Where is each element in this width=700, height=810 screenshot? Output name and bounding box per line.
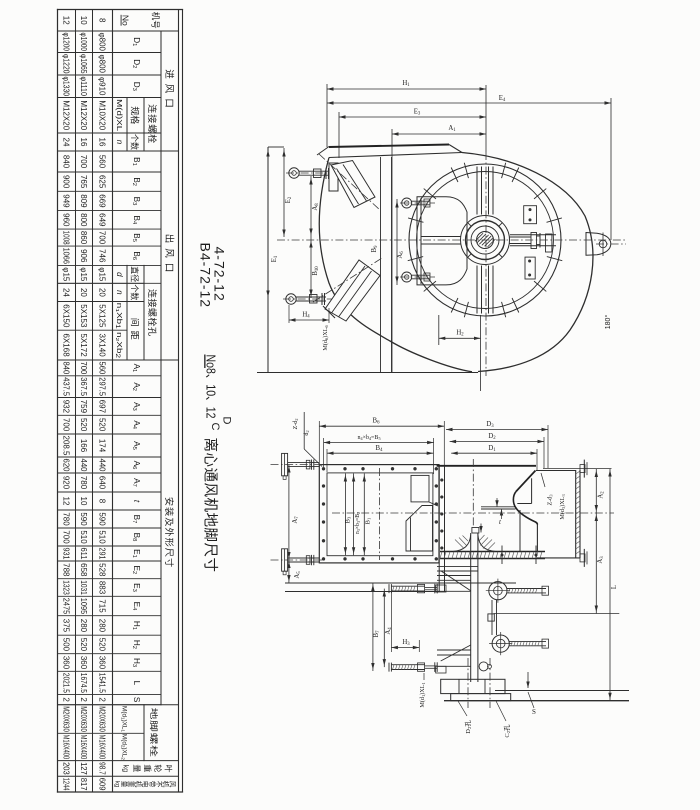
svg-text:611: 611	[79, 548, 88, 561]
svg-text:D2: D2	[488, 433, 496, 441]
svg-text:H3: H3	[131, 658, 141, 667]
svg-text:B6: B6	[373, 418, 381, 426]
svg-text:A7: A7	[292, 516, 300, 524]
svg-text:920: 920	[62, 476, 71, 490]
svg-text:S: S	[532, 708, 536, 716]
svg-text:M(d1)XL1: M(d1)XL1	[419, 682, 426, 707]
svg-text:φ800: φ800	[98, 54, 107, 73]
svg-text:C2孔: C2孔	[503, 724, 511, 738]
svg-text:16: 16	[98, 138, 107, 147]
svg-text:D: D	[221, 417, 233, 425]
svg-text:817: 817	[79, 778, 88, 791]
svg-text:φ15: φ15	[79, 267, 88, 282]
svg-text:649: 649	[98, 213, 107, 227]
svg-text:658: 658	[79, 563, 88, 577]
svg-text:M10X20: M10X20	[98, 100, 107, 130]
svg-text:367.5: 367.5	[79, 377, 88, 396]
svg-text:932: 932	[62, 400, 71, 414]
svg-text:759: 759	[79, 400, 88, 414]
svg-text:B5: B5	[131, 233, 141, 242]
svg-text:D2孔: D2孔	[464, 720, 472, 734]
svg-text:A1: A1	[448, 125, 456, 133]
svg-text:M(d1)XL1: M(d1)XL1	[119, 706, 127, 732]
svg-text:883: 883	[98, 581, 107, 595]
svg-text:5X125: 5X125	[98, 304, 107, 328]
svg-text:B6: B6	[131, 251, 141, 260]
svg-text:D2: D2	[131, 59, 141, 68]
svg-text:280: 280	[79, 619, 88, 633]
svg-text:φ1200: φ1200	[62, 33, 71, 52]
svg-text:H2: H2	[456, 330, 464, 338]
svg-text:D3: D3	[486, 421, 494, 429]
svg-text:780: 780	[62, 512, 71, 526]
svg-text:520: 520	[79, 418, 88, 432]
svg-text:φ1110: φ1110	[79, 77, 88, 97]
svg-text:D1: D1	[131, 37, 141, 46]
svg-text:连接螺栓孔: 连接螺栓孔	[147, 289, 158, 337]
svg-text:机号: 机号	[151, 12, 161, 29]
svg-text:B7: B7	[131, 515, 141, 524]
svg-text:D1: D1	[488, 445, 496, 453]
svg-text:669: 669	[98, 194, 107, 208]
svg-text:Z-d2: Z-d2	[292, 418, 299, 429]
svg-text:B2: B2	[131, 177, 141, 186]
svg-text:No8、10、12: No8、10、12	[204, 355, 219, 419]
svg-text:166: 166	[79, 439, 88, 453]
svg-text:127: 127	[79, 762, 88, 775]
svg-text:A1: A1	[131, 364, 141, 373]
svg-text:A4: A4	[385, 627, 393, 635]
svg-text:510: 510	[98, 530, 107, 544]
svg-text:n3×b3=B2: n3×b3=B2	[355, 512, 361, 534]
svg-text:E4: E4	[131, 602, 141, 611]
svg-text:375: 375	[62, 619, 71, 633]
svg-text:规格: 规格	[130, 106, 141, 124]
svg-text:n: n	[115, 290, 124, 295]
svg-text:360: 360	[98, 656, 107, 670]
svg-text:700: 700	[62, 530, 71, 544]
svg-text:A3: A3	[131, 402, 141, 411]
svg-text:M(d)XL: M(d)XL	[115, 99, 122, 131]
svg-text:H1: H1	[131, 621, 141, 630]
svg-text:H2: H2	[131, 640, 141, 649]
svg-text:A8: A8	[312, 203, 320, 211]
svg-text:1674.5: 1674.5	[79, 673, 88, 694]
svg-text:780: 780	[79, 476, 88, 490]
svg-text:24: 24	[62, 138, 71, 147]
svg-text:d: d	[115, 272, 124, 277]
svg-text:520: 520	[98, 638, 107, 652]
svg-text:700: 700	[62, 418, 71, 432]
svg-text:E3: E3	[414, 109, 421, 117]
svg-text:φ1065: φ1065	[79, 54, 88, 74]
svg-text:E2: E2	[285, 196, 293, 203]
svg-text:H3: H3	[402, 639, 410, 647]
svg-text:620: 620	[62, 459, 71, 473]
svg-text:A7: A7	[131, 478, 141, 487]
svg-text:1066: 1066	[62, 248, 71, 265]
svg-text:E1: E1	[131, 549, 141, 558]
svg-text:A2: A2	[131, 382, 141, 391]
svg-text:280: 280	[98, 619, 107, 633]
svg-text:590: 590	[98, 512, 107, 526]
svg-text:B4: B4	[131, 216, 141, 225]
svg-text:直径: 直径	[130, 266, 140, 282]
svg-text:L: L	[132, 681, 141, 686]
svg-text:1095: 1095	[79, 598, 88, 615]
svg-text:B4-72-12: B4-72-12	[198, 243, 214, 309]
svg-text:840: 840	[62, 362, 71, 375]
svg-text:5X153: 5X153	[79, 304, 88, 328]
svg-text:A4: A4	[131, 420, 141, 429]
svg-text:437.5: 437.5	[62, 377, 71, 396]
svg-text:800: 800	[79, 213, 88, 227]
svg-text:风机不带电机重量kg: 风机不带电机重量kg	[113, 781, 176, 788]
svg-text:φ1000: φ1000	[79, 33, 88, 52]
svg-text:520: 520	[98, 418, 107, 432]
svg-text:φ15: φ15	[62, 267, 71, 282]
svg-text:离心通风机地脚尺寸: 离心通风机地脚尺寸	[202, 438, 219, 573]
svg-text:A3: A3	[597, 556, 605, 564]
svg-text:715: 715	[98, 599, 107, 613]
svg-text:6X168: 6X168	[62, 334, 71, 358]
svg-text:2: 2	[98, 697, 107, 702]
svg-text:n1Xb1: n1Xb1	[114, 303, 122, 330]
svg-text:M16X400: M16X400	[62, 735, 71, 760]
svg-text:1244: 1244	[62, 778, 71, 791]
svg-text:297.5: 297.5	[98, 377, 107, 396]
svg-text:φ15: φ15	[98, 267, 107, 282]
svg-text:n2Xb2: n2Xb2	[114, 332, 122, 359]
svg-text:788: 788	[62, 563, 71, 577]
svg-text:叶轮重量kg: 叶轮重量kg	[122, 764, 173, 772]
svg-text:间距: 间距	[130, 318, 141, 344]
svg-text:6X150: 6X150	[62, 304, 71, 328]
svg-text:360: 360	[79, 656, 88, 670]
svg-text:697: 697	[98, 400, 107, 414]
svg-text:t: t	[499, 518, 502, 526]
svg-text:1323: 1323	[62, 580, 71, 595]
svg-text:B3: B3	[131, 197, 141, 206]
svg-text:A2: A2	[598, 491, 606, 499]
svg-text:1541.5: 1541.5	[98, 673, 107, 694]
svg-text:1031: 1031	[79, 580, 88, 595]
svg-text:840: 840	[62, 155, 71, 169]
svg-text:B10: B10	[312, 266, 320, 276]
svg-text:M20X630: M20X630	[62, 706, 71, 732]
svg-text:D3: D3	[131, 82, 141, 91]
svg-text:765: 765	[79, 175, 88, 189]
svg-text:地脚螺栓: 地脚螺栓	[149, 708, 159, 758]
svg-text:E1: E1	[271, 255, 279, 262]
svg-text:640: 640	[98, 476, 107, 490]
svg-text:860: 860	[79, 231, 88, 245]
svg-text:B8: B8	[131, 533, 141, 542]
svg-text:连接螺栓: 连接螺栓	[147, 104, 158, 144]
svg-text:E4: E4	[499, 95, 506, 103]
svg-text:E2: E2	[131, 566, 141, 575]
svg-text:A6: A6	[131, 461, 141, 470]
svg-text:H1: H1	[402, 80, 410, 88]
svg-text:B4: B4	[376, 445, 384, 453]
svg-text:H4: H4	[302, 312, 310, 320]
svg-text:n: n	[115, 140, 124, 145]
svg-text:2: 2	[62, 697, 71, 702]
svg-text:700: 700	[79, 362, 88, 375]
svg-text:440: 440	[79, 459, 88, 473]
svg-text:3X140: 3X140	[98, 334, 107, 358]
svg-text:A5: A5	[294, 571, 302, 579]
svg-text:24: 24	[62, 288, 71, 297]
svg-text:10: 10	[79, 497, 88, 506]
svg-text:746: 746	[98, 249, 107, 263]
svg-text:φ910: φ910	[98, 77, 107, 96]
svg-text:900: 900	[62, 175, 71, 189]
svg-text:8: 8	[98, 499, 107, 504]
svg-text:E3: E3	[131, 583, 141, 592]
svg-text:560: 560	[98, 362, 107, 375]
svg-text:2475: 2475	[62, 598, 71, 615]
svg-text:2: 2	[79, 697, 88, 702]
svg-text:t: t	[132, 500, 141, 503]
svg-text:M20X630: M20X630	[79, 706, 88, 732]
svg-text:M(d2)XL2: M(d2)XL2	[119, 734, 127, 760]
svg-text:个数: 个数	[130, 134, 140, 150]
svg-text:个数: 个数	[130, 284, 140, 300]
svg-text:360: 360	[62, 656, 71, 670]
svg-text:M(d3)XL3: M(d3)XL3	[559, 494, 566, 519]
svg-text:M(d6)XL6: M(d6)XL6	[322, 325, 329, 351]
svg-text:510: 510	[79, 530, 88, 544]
svg-text:B7: B7	[373, 630, 381, 638]
svg-text:5X172: 5X172	[79, 334, 88, 358]
svg-text:M12X20: M12X20	[79, 100, 88, 130]
svg-text:φ1220: φ1220	[62, 54, 71, 74]
svg-text:98.7: 98.7	[98, 762, 107, 775]
svg-text:931: 931	[62, 548, 71, 560]
svg-text:520: 520	[79, 638, 88, 652]
svg-text:M12X20: M12X20	[62, 100, 71, 130]
svg-text:700: 700	[79, 155, 88, 169]
svg-text:20: 20	[79, 288, 88, 297]
svg-text:A5: A5	[131, 441, 141, 450]
svg-text:809: 809	[79, 194, 88, 208]
svg-text:12: 12	[62, 16, 71, 25]
svg-text:174: 174	[98, 439, 107, 453]
svg-text:No: No	[121, 15, 131, 26]
svg-text:20: 20	[98, 288, 107, 297]
svg-text:960: 960	[62, 213, 71, 227]
svg-text:590: 590	[79, 512, 88, 526]
svg-text:609: 609	[98, 778, 107, 791]
svg-text:560: 560	[98, 155, 107, 169]
svg-text:M20X630: M20X630	[98, 706, 107, 732]
svg-text:906: 906	[79, 249, 88, 263]
svg-text:949: 949	[62, 194, 71, 208]
svg-text:B1: B1	[365, 518, 372, 525]
svg-text:12: 12	[62, 497, 71, 506]
svg-text:出风口: 出风口	[163, 234, 175, 278]
svg-text:进风口: 进风口	[163, 69, 174, 113]
svg-text:B9: B9	[371, 245, 379, 253]
svg-text:C: C	[209, 423, 221, 431]
svg-text:φ1330: φ1330	[62, 77, 71, 97]
svg-text:528: 528	[98, 563, 107, 577]
svg-text:M16X400: M16X400	[98, 735, 107, 760]
svg-text:203: 203	[62, 762, 71, 775]
svg-text:Z-d3: Z-d3	[547, 494, 554, 505]
svg-text:L: L	[611, 585, 618, 589]
svg-text:1008: 1008	[62, 231, 71, 245]
svg-text:n4×b4=B5: n4×b4=B5	[357, 435, 380, 441]
svg-text:625: 625	[98, 175, 107, 189]
svg-text:A6: A6	[397, 251, 405, 259]
svg-text:M16X400: M16X400	[79, 735, 88, 760]
svg-text:10: 10	[79, 16, 88, 25]
svg-text:8: 8	[98, 18, 107, 23]
svg-text:291: 291	[98, 548, 107, 560]
svg-text:S: S	[132, 697, 141, 703]
svg-text:16: 16	[79, 138, 88, 147]
svg-text:700: 700	[98, 231, 107, 245]
svg-text:安装及外形尺寸: 安装及外形尺寸	[164, 497, 175, 568]
svg-text:180°: 180°	[604, 315, 612, 330]
svg-text:B1: B1	[131, 157, 141, 166]
svg-text:φ800: φ800	[98, 32, 107, 51]
svg-text:208.5: 208.5	[62, 436, 71, 457]
svg-text:2021.5: 2021.5	[62, 673, 71, 694]
svg-text:500: 500	[62, 638, 71, 652]
svg-text:440: 440	[98, 459, 107, 473]
